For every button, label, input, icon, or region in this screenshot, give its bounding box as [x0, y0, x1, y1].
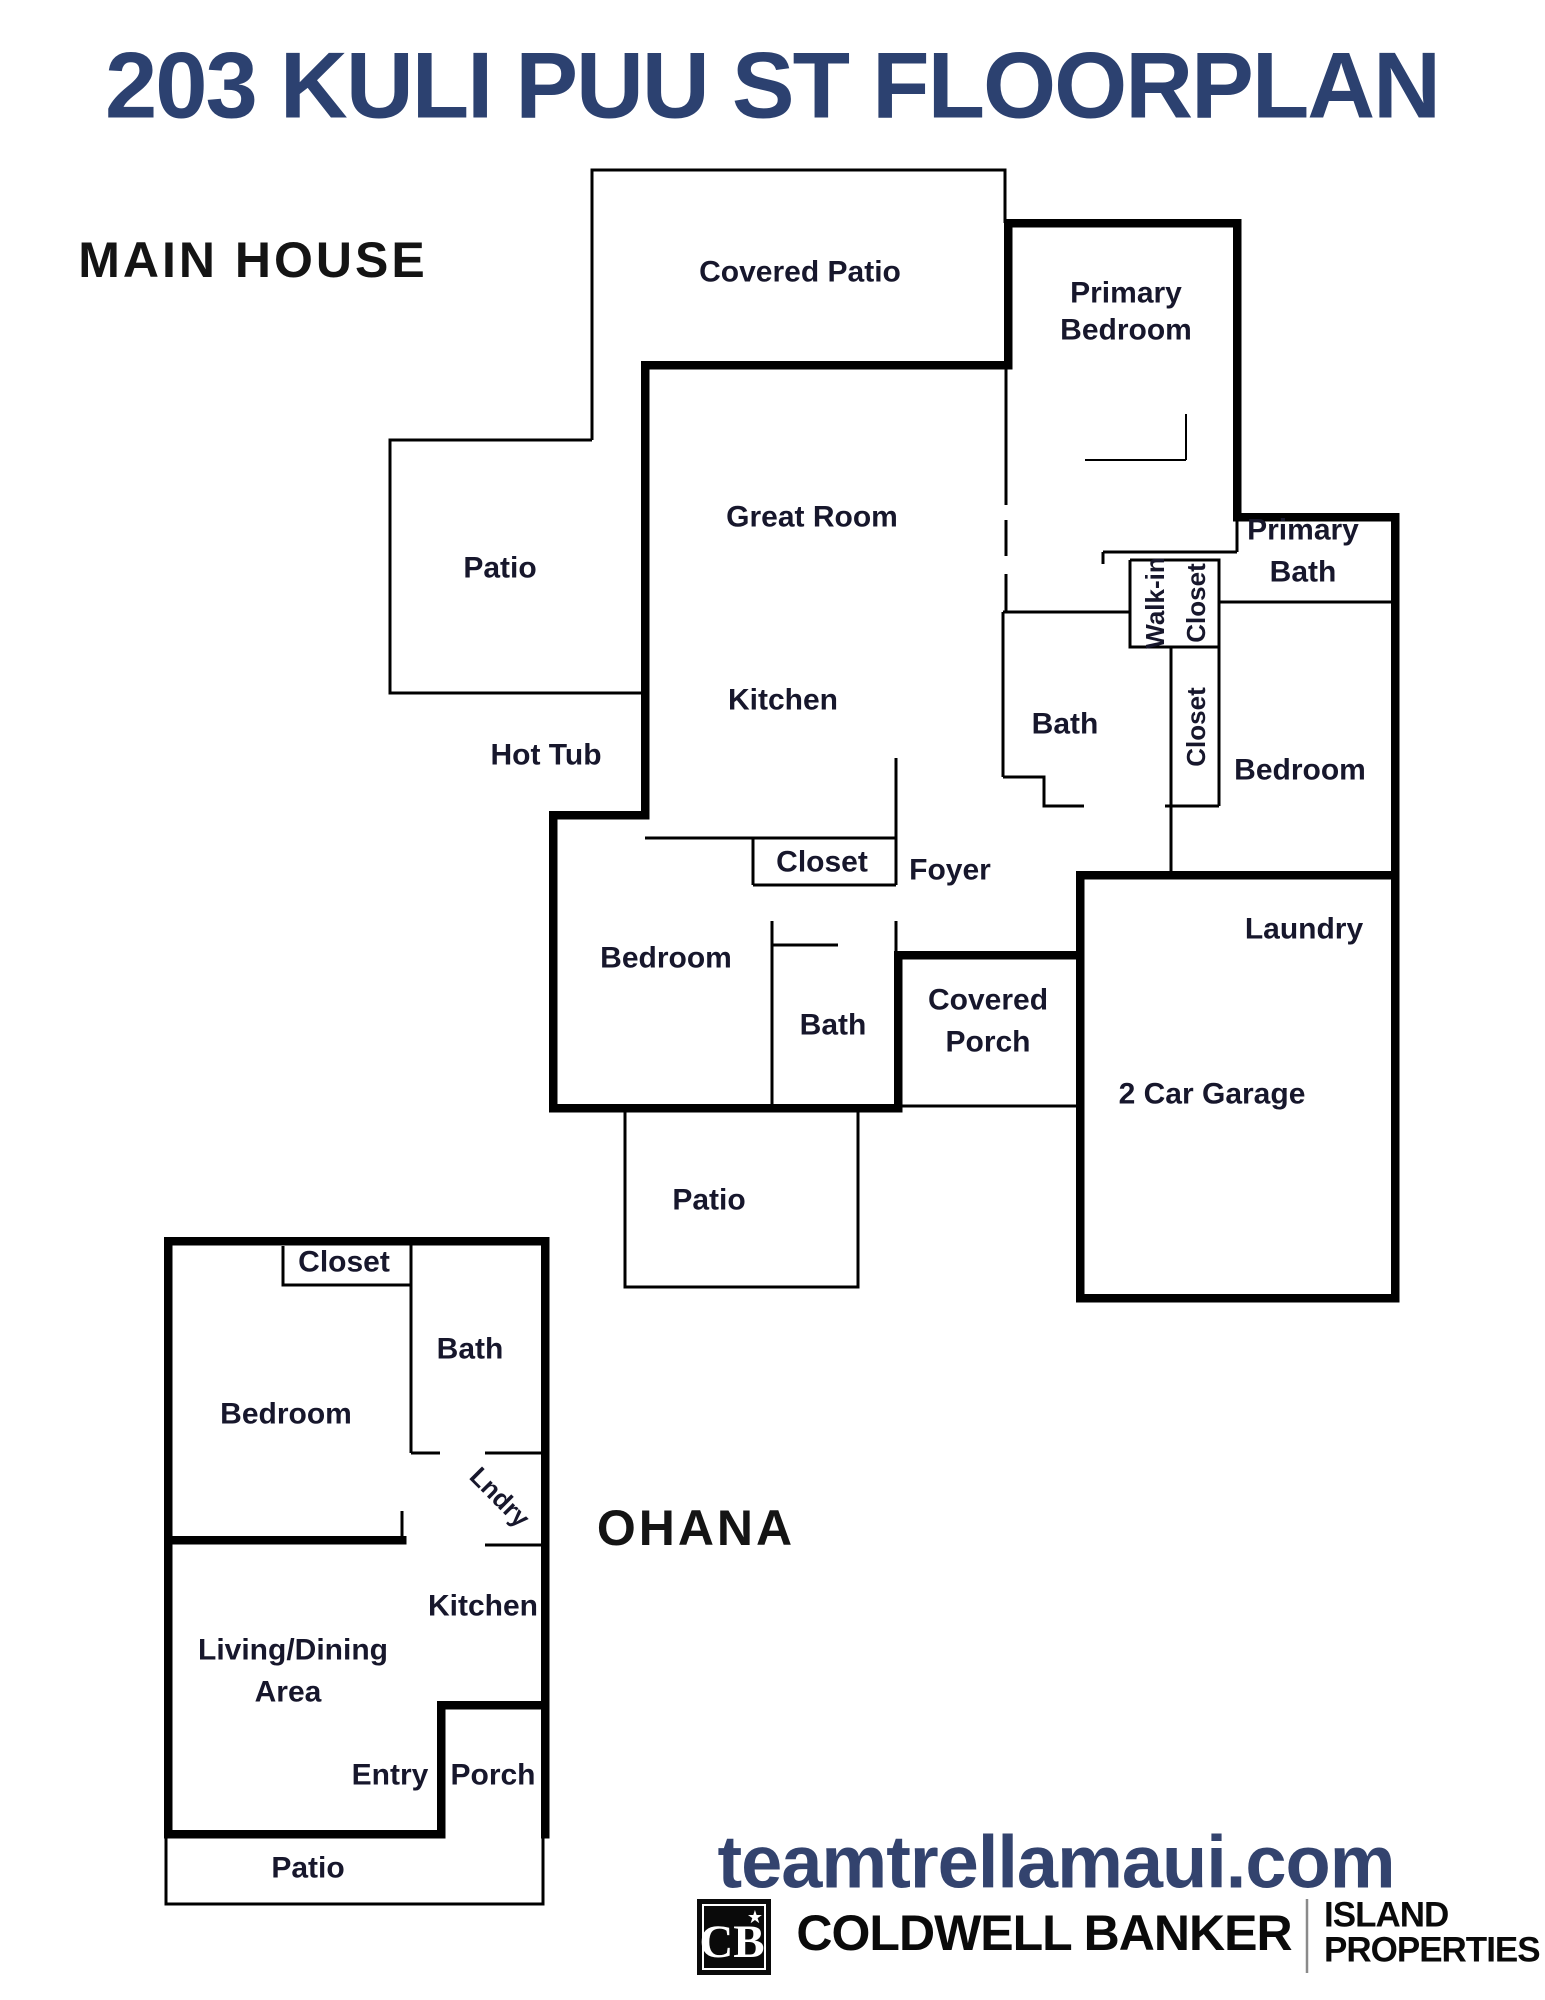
room-label-front-bath: Bath: [800, 1009, 867, 1042]
room-label-primary-bedroom-line1: Primary: [1070, 277, 1182, 310]
room-label-front-bedroom: Bedroom: [600, 942, 732, 975]
ohana-label-kitchen: Kitchen: [428, 1590, 538, 1623]
page-title: 203 KULI PUU ST FLOORPLAN: [105, 33, 1439, 138]
island-properties-line1: ISLAND: [1324, 1896, 1448, 1935]
primary-door-swing: [1085, 414, 1186, 460]
kitchen-walls: [645, 758, 896, 838]
ohana-label-porch: Porch: [450, 1759, 535, 1792]
ohana-label-living-dining-line2: Area: [255, 1676, 322, 1709]
covered-patio-outline: [592, 170, 1005, 440]
room-label-hot-tub: Hot Tub: [490, 739, 601, 772]
island-properties-line2: PROPERTIES: [1324, 1931, 1540, 1970]
ohana-label-bedroom: Bedroom: [220, 1398, 352, 1431]
primary-suite-divider: [1103, 517, 1237, 564]
room-label-primary-bedroom-line2: Bedroom: [1060, 314, 1192, 347]
room-label-covered-porch-line1: Covered: [928, 984, 1048, 1017]
room-label-hall-closet: Closet: [776, 846, 868, 879]
website-url: teamtrellamaui.com: [717, 1821, 1394, 1904]
room-label-covered-patio: Covered Patio: [699, 256, 901, 289]
footer: teamtrellamaui.com CB ★ COLDWELL BANKER …: [697, 1821, 1540, 1976]
room-label-lower-patio: Patio: [672, 1184, 745, 1217]
ohana-labels: Closet Bath Bedroom Lndry Kitchen Living…: [198, 1246, 538, 1885]
room-label-upper-patio: Patio: [463, 552, 536, 585]
room-label-great-room: Great Room: [726, 501, 898, 534]
section-label-ohana: OHANA: [597, 1500, 795, 1556]
coldwell-banker-star-icon: ★: [747, 1907, 763, 1927]
main-house-walls: [390, 170, 1395, 1298]
ohana-patio-outline: [166, 1834, 543, 1904]
room-label-foyer: Foyer: [909, 854, 991, 887]
room-label-bedroom-closet: Closet: [1181, 687, 1211, 767]
coldwell-banker-wordmark: COLDWELL BANKER: [796, 1905, 1292, 1961]
ohana-label-patio: Patio: [271, 1852, 344, 1885]
ohana-label-laundry: Lndry: [464, 1461, 537, 1534]
room-label-primary-bath-line2: Bath: [1270, 556, 1337, 589]
main-house-labels: Covered Patio Patio Great Room Kitchen H…: [463, 256, 1366, 1217]
room-label-walk-in-closet-line2: Closet: [1181, 563, 1211, 643]
room-label-laundry: Laundry: [1245, 913, 1364, 946]
room-label-kitchen: Kitchen: [728, 684, 838, 717]
room-label-primary-bath-line1: Primary: [1247, 514, 1359, 547]
floorplan-svg: 203 KULI PUU ST FLOORPLAN MAIN HOUSE OHA…: [0, 0, 1545, 2000]
room-label-garage: 2 Car Garage: [1119, 1078, 1306, 1111]
floorplan-page: 203 KULI PUU ST FLOORPLAN MAIN HOUSE OHA…: [0, 0, 1545, 2000]
ohana-label-bath: Bath: [437, 1333, 504, 1366]
room-label-hall-bath: Bath: [1032, 708, 1099, 741]
room-label-covered-porch-line2: Porch: [945, 1026, 1030, 1059]
ohana-label-closet: Closet: [298, 1246, 390, 1279]
room-label-walk-in-closet-line1: Walk-in: [1140, 557, 1170, 648]
ohana-label-entry: Entry: [352, 1759, 429, 1792]
section-label-main-house: MAIN HOUSE: [78, 232, 427, 288]
ohana-label-living-dining-line1: Living/Dining: [198, 1634, 388, 1667]
room-label-back-bedroom: Bedroom: [1234, 754, 1366, 787]
